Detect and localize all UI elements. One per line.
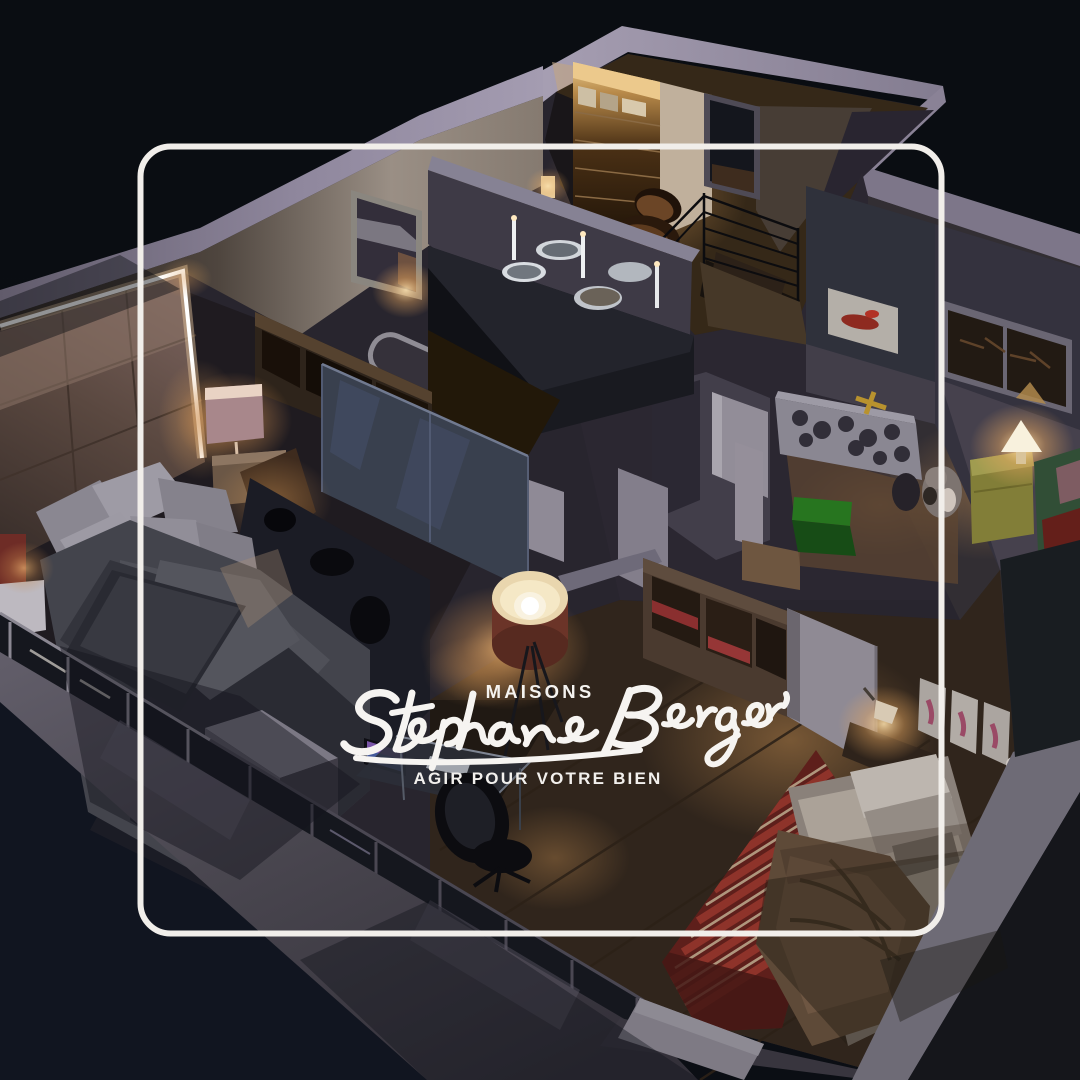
svg-text:MAISONS: MAISONS: [486, 681, 595, 702]
svg-text:AGIR POUR VOTRE BIEN: AGIR POUR VOTRE BIEN: [414, 769, 663, 788]
